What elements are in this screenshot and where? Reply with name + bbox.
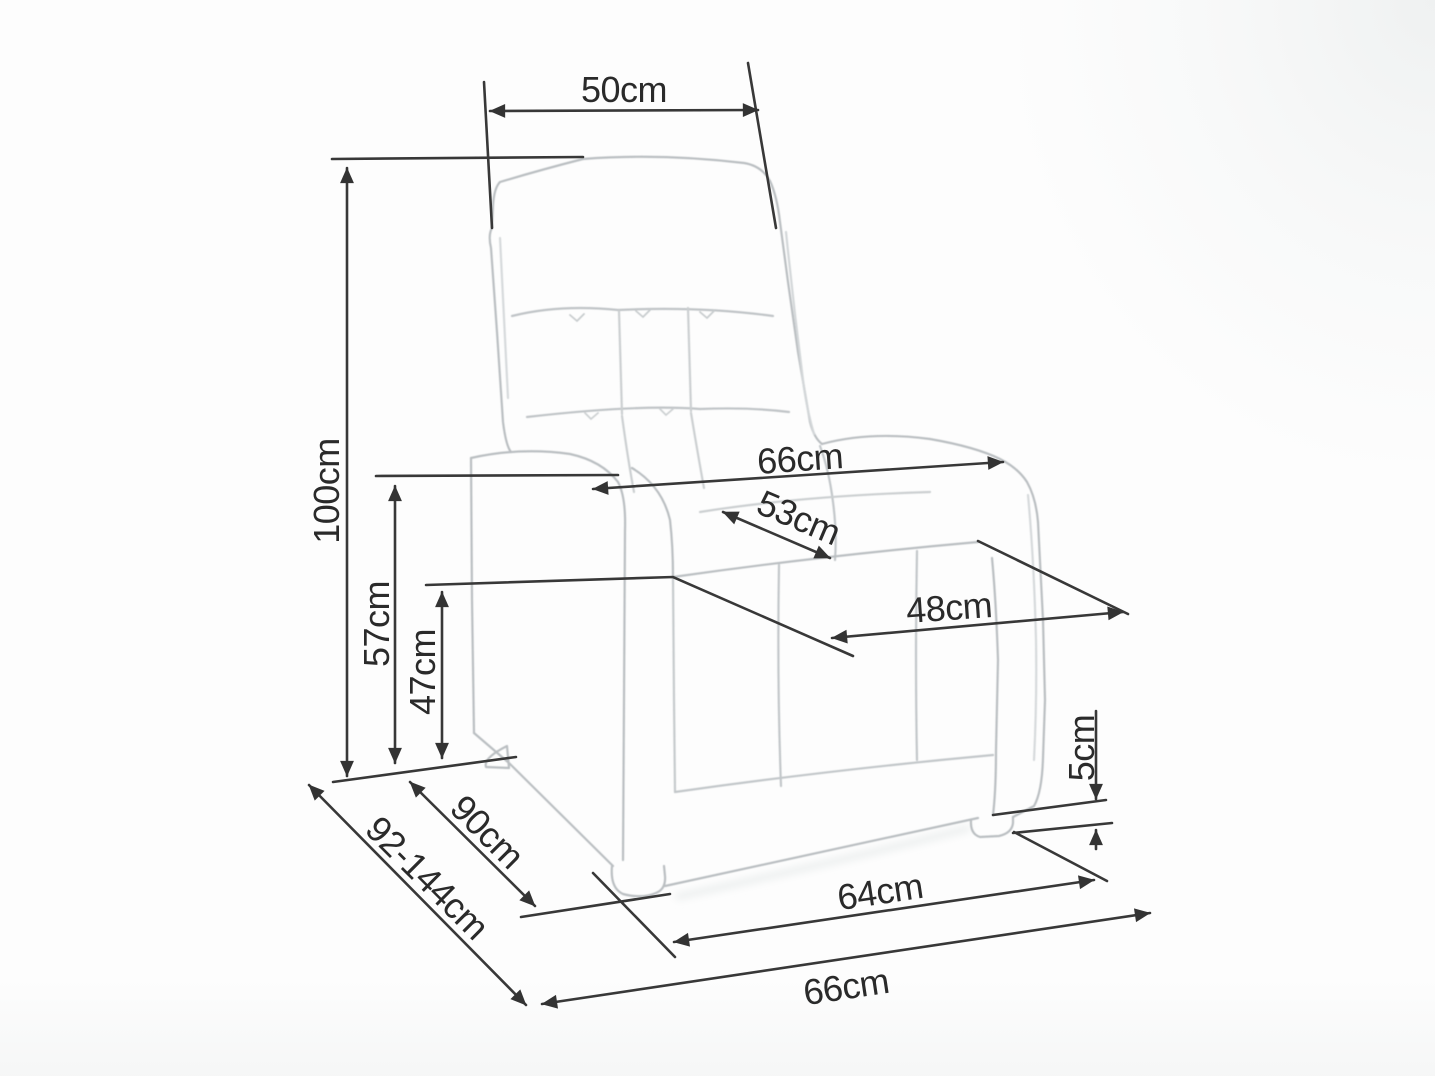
svg-text:50cm: 50cm	[581, 69, 667, 110]
svg-text:5cm: 5cm	[1061, 715, 1102, 782]
svg-text:66cm: 66cm	[756, 435, 845, 482]
svg-text:48cm: 48cm	[905, 584, 994, 631]
svg-text:47cm: 47cm	[402, 629, 443, 715]
svg-text:100cm: 100cm	[306, 438, 347, 544]
svg-text:57cm: 57cm	[356, 581, 397, 667]
